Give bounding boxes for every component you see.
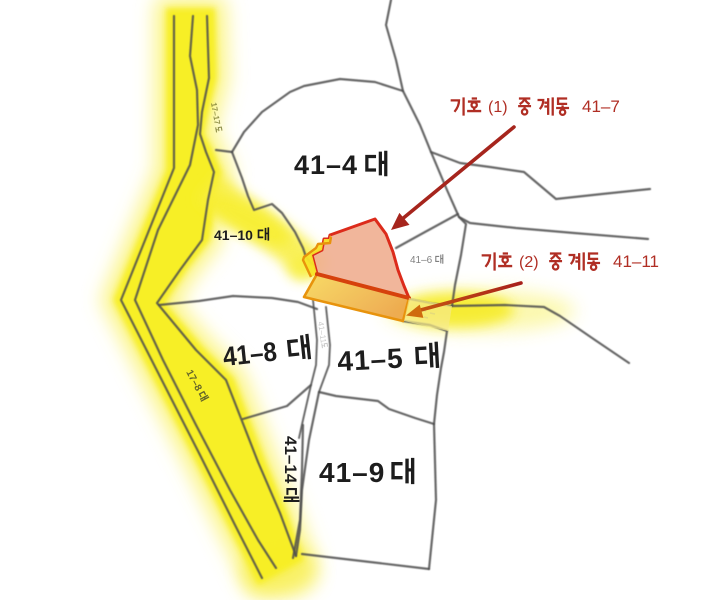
svg-text:41–5: 41–5 [337,343,405,377]
svg-text:41–11: 41–11 [613,252,659,271]
svg-text:41–6: 41–6 [410,255,433,266]
svg-text:41–4: 41–4 [294,150,358,180]
svg-text:(1): (1) [488,99,508,116]
svg-text:41–14: 41–14 [281,436,300,484]
svg-text:41–7: 41–7 [582,97,620,116]
svg-text:41–9: 41–9 [319,457,385,488]
svg-text:41–10: 41–10 [214,227,253,243]
svg-text:(2): (2) [519,254,539,271]
svg-text:41–8: 41–8 [221,336,278,371]
